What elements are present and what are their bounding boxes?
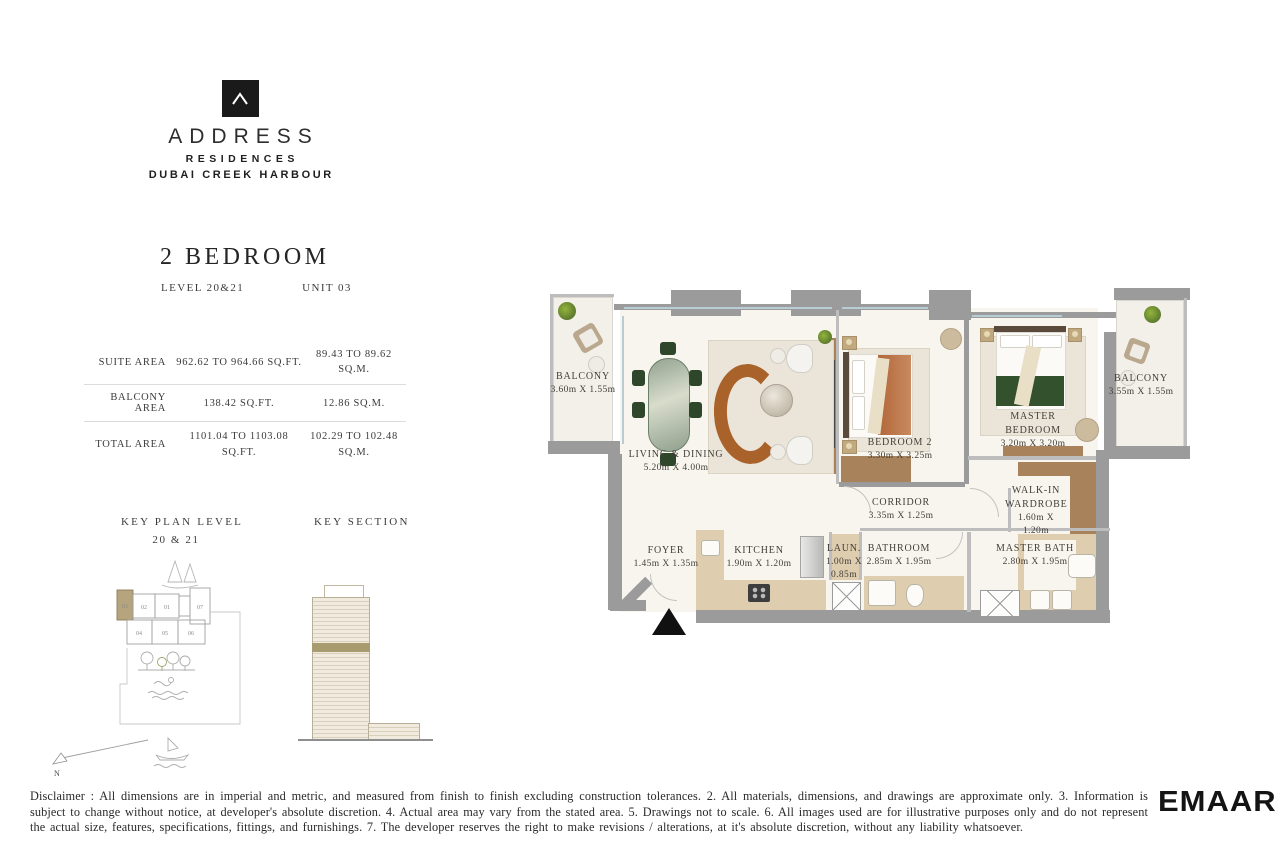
disclaimer-text: Disclaimer : All dimensions are in imper… <box>30 789 1148 836</box>
stove-icon <box>748 584 770 602</box>
accent-chair <box>940 328 962 350</box>
imperial-value: 138.42 SQ.FT. <box>176 396 302 411</box>
ground-line <box>298 739 433 741</box>
unit-number: 03 <box>122 604 128 610</box>
room-label-laundry: LAUN. 1.00m X 0.85m <box>825 542 863 583</box>
level-highlight-band <box>312 643 370 652</box>
room-name: BATHROOM <box>860 542 938 556</box>
wall <box>610 600 646 611</box>
balcony-right-rail <box>1184 298 1187 450</box>
trees-icon <box>138 652 195 671</box>
wall <box>1104 446 1190 459</box>
room-dims: 3.35m X 1.25m <box>846 510 956 523</box>
area-table: SUITE AREA 962.62 TO 964.66 SQ.FT. 89.43… <box>84 340 406 467</box>
table-row: BALCONY AREA 138.42 SQ.FT. 12.86 SQ.M. <box>84 384 406 421</box>
fridge <box>800 536 824 578</box>
walkin-closet-top <box>1018 462 1097 476</box>
dining-chair <box>660 342 676 355</box>
imperial-value: 962.62 TO 964.66 SQ.FT. <box>176 355 302 370</box>
room-name: MASTER BEDROOM <box>993 410 1073 438</box>
room-dims: 1.45m X 1.35m <box>630 558 702 571</box>
room-name: LAUN. <box>825 542 863 556</box>
washing-machine <box>832 582 861 611</box>
waves-icon <box>148 692 188 700</box>
tower-section <box>312 597 370 741</box>
room-dims: 3.60m X 1.55m <box>549 384 617 397</box>
plant-icon <box>1144 306 1161 323</box>
brand-residences: RESIDENCES <box>130 153 350 165</box>
window-glazing <box>972 315 1062 317</box>
wall-column <box>791 290 861 316</box>
room-name: WALK-IN WARDROBE <box>1005 484 1067 512</box>
unit-number: 02 <box>141 605 147 611</box>
kitchen-sink <box>701 540 720 556</box>
unit-number: 07 <box>197 605 203 611</box>
plant-icon <box>818 330 832 344</box>
room-label-foyer: FOYER 1.45m X 1.35m <box>630 544 702 571</box>
row-label: SUITE AREA <box>84 357 176 368</box>
brand-block: ADDRESS RESIDENCES DUBAI CREEK HARBOUR <box>130 80 350 181</box>
window-glazing <box>624 307 832 309</box>
wall <box>839 482 965 487</box>
plant-icon <box>558 302 576 320</box>
wall <box>548 441 620 454</box>
window-glazing <box>622 316 624 444</box>
room-name: FOYER <box>630 544 702 558</box>
room-name: MASTER BATH <box>990 542 1080 556</box>
wall-column <box>671 290 741 316</box>
room-label-balcony-left: BALCONY 3.60m X 1.55m <box>549 370 617 397</box>
unit-number: 04 <box>136 631 142 637</box>
room-label-living-dining: LIVING & DINING 5.20m X 4.00m <box>621 448 731 475</box>
metric-value: 102.29 TO 102.48 SQ.M. <box>302 429 406 459</box>
brand-location: DUBAI CREEK HARBOUR <box>130 169 350 181</box>
dining-chair <box>632 402 645 418</box>
room-dims: 1.00m X 0.85m <box>825 556 863 583</box>
balcony-left-rail-top <box>550 294 614 297</box>
accent-chair <box>1075 418 1099 442</box>
room-dims: 5.20m X 4.00m <box>621 462 731 475</box>
unit-number: 06 <box>188 631 194 637</box>
room-name: BALCONY <box>1108 372 1174 386</box>
walkin-closet-side <box>1070 476 1097 534</box>
room-label-balcony-right: BALCONY 3.55m X 1.55m <box>1108 372 1174 399</box>
wall <box>968 456 1096 460</box>
address-logo-icon <box>222 80 259 117</box>
level-label: LEVEL 20&21 <box>161 282 244 294</box>
unit-number: 05 <box>162 631 168 637</box>
toilet <box>906 584 924 607</box>
pillow <box>852 396 865 430</box>
side-table <box>770 444 786 460</box>
room-dims: 1.90m X 1.20m <box>720 558 798 571</box>
wall <box>967 532 971 612</box>
imperial-value: 1101.04 TO 1103.08 SQ.FT. <box>176 429 302 459</box>
pine-trees-icon <box>162 561 198 588</box>
entrance-marker-icon <box>652 608 686 635</box>
page-title: 2 BEDROOM <box>160 244 330 271</box>
nightstand <box>1068 328 1082 342</box>
room-dims: 3.20m X 3.20m <box>993 438 1073 451</box>
key-plan-subtitle: 20 & 21 <box>121 534 231 546</box>
dining-chair <box>689 402 702 418</box>
metric-value: 12.86 SQ.M. <box>302 396 406 411</box>
wall <box>1114 288 1190 300</box>
armchair <box>786 344 813 373</box>
metric-value: 89.43 TO 89.62 SQ.M. <box>302 347 406 377</box>
room-name: KITCHEN <box>720 544 798 558</box>
room-label-bathroom: BATHROOM 2.85m X 1.95m <box>860 542 938 569</box>
room-dims: 3.30m X 3.25m <box>845 450 955 463</box>
wall <box>836 310 839 484</box>
dining-chair <box>689 370 702 386</box>
north-arrow-icon: N <box>53 740 148 778</box>
key-section-title: KEY SECTION <box>314 516 410 528</box>
room-label-walkin-wardrobe: WALK-IN WARDROBE 1.60m X 1.20m <box>1005 484 1067 539</box>
room-label-bedroom2: BEDROOM 2 3.30m X 3.25m <box>845 436 955 463</box>
row-label: TOTAL AREA <box>84 439 176 450</box>
key-section-drawing <box>298 583 433 755</box>
room-label-master-bath: MASTER BATH 2.80m X 1.95m <box>990 542 1080 569</box>
room-label-corridor: CORRIDOR 3.35m X 1.25m <box>846 496 956 523</box>
room-name: BEDROOM 2 <box>845 436 955 450</box>
room-label-kitchen: KITCHEN 1.90m X 1.20m <box>720 544 798 571</box>
dining-table <box>648 358 690 452</box>
sink <box>1052 590 1072 610</box>
nightstand <box>842 336 857 350</box>
room-dims: 1.60m X 1.20m <box>1005 512 1067 539</box>
unit-number-label: UNIT 03 <box>302 282 352 294</box>
unit-subtitle: LEVEL 20&21 UNIT 03 <box>161 282 352 294</box>
key-plan-title: KEY PLAN LEVEL <box>121 516 243 528</box>
wall <box>860 528 1110 531</box>
row-label: BALCONY AREA <box>84 392 176 414</box>
dining-chair <box>632 370 645 386</box>
room-name: CORRIDOR <box>846 496 956 510</box>
swimmer-icon <box>154 678 174 686</box>
pillow <box>1032 335 1062 348</box>
floor-plan-brochure-page: ADDRESS RESIDENCES DUBAI CREEK HARBOUR 2… <box>0 0 1280 855</box>
brand-name: ADDRESS <box>130 125 350 149</box>
room-dims: 2.80m X 1.95m <box>990 556 1080 569</box>
wall <box>1096 450 1109 623</box>
armchair <box>786 436 813 465</box>
table-row: SUITE AREA 962.62 TO 964.66 SQ.FT. 89.43… <box>84 340 406 384</box>
chevron-up-icon <box>230 92 250 106</box>
emaar-logo: EMAAR <box>1158 785 1277 818</box>
room-dims: 2.85m X 1.95m <box>860 556 938 569</box>
floor-plan: BALCONY 3.60m X 1.55m LIVING & DINING 5.… <box>548 288 1196 640</box>
balcony-left-rail <box>550 294 553 444</box>
room-label-master-bedroom: MASTER BEDROOM 3.20m X 3.20m <box>993 410 1073 451</box>
side-table <box>770 348 786 364</box>
sink <box>1030 590 1050 610</box>
north-label: N <box>54 769 60 778</box>
key-plan-drawing: N 03 02 01 07 04 05 06 <box>50 552 275 784</box>
window-glazing <box>842 307 928 309</box>
wall <box>608 454 622 610</box>
service-shaft <box>980 590 1020 617</box>
room-name: LIVING & DINING <box>621 448 731 462</box>
room-name: BALCONY <box>549 370 617 384</box>
table-row: TOTAL AREA 1101.04 TO 1103.08 SQ.FT. 102… <box>84 421 406 466</box>
unit-number: 01 <box>164 605 170 611</box>
coffee-table <box>760 384 793 417</box>
bathroom-vanity <box>868 580 896 606</box>
room-dims: 3.55m X 1.55m <box>1108 386 1174 399</box>
pillow <box>852 360 865 394</box>
wall <box>696 610 1110 623</box>
nightstand <box>980 328 994 342</box>
boat-icon <box>154 738 188 768</box>
